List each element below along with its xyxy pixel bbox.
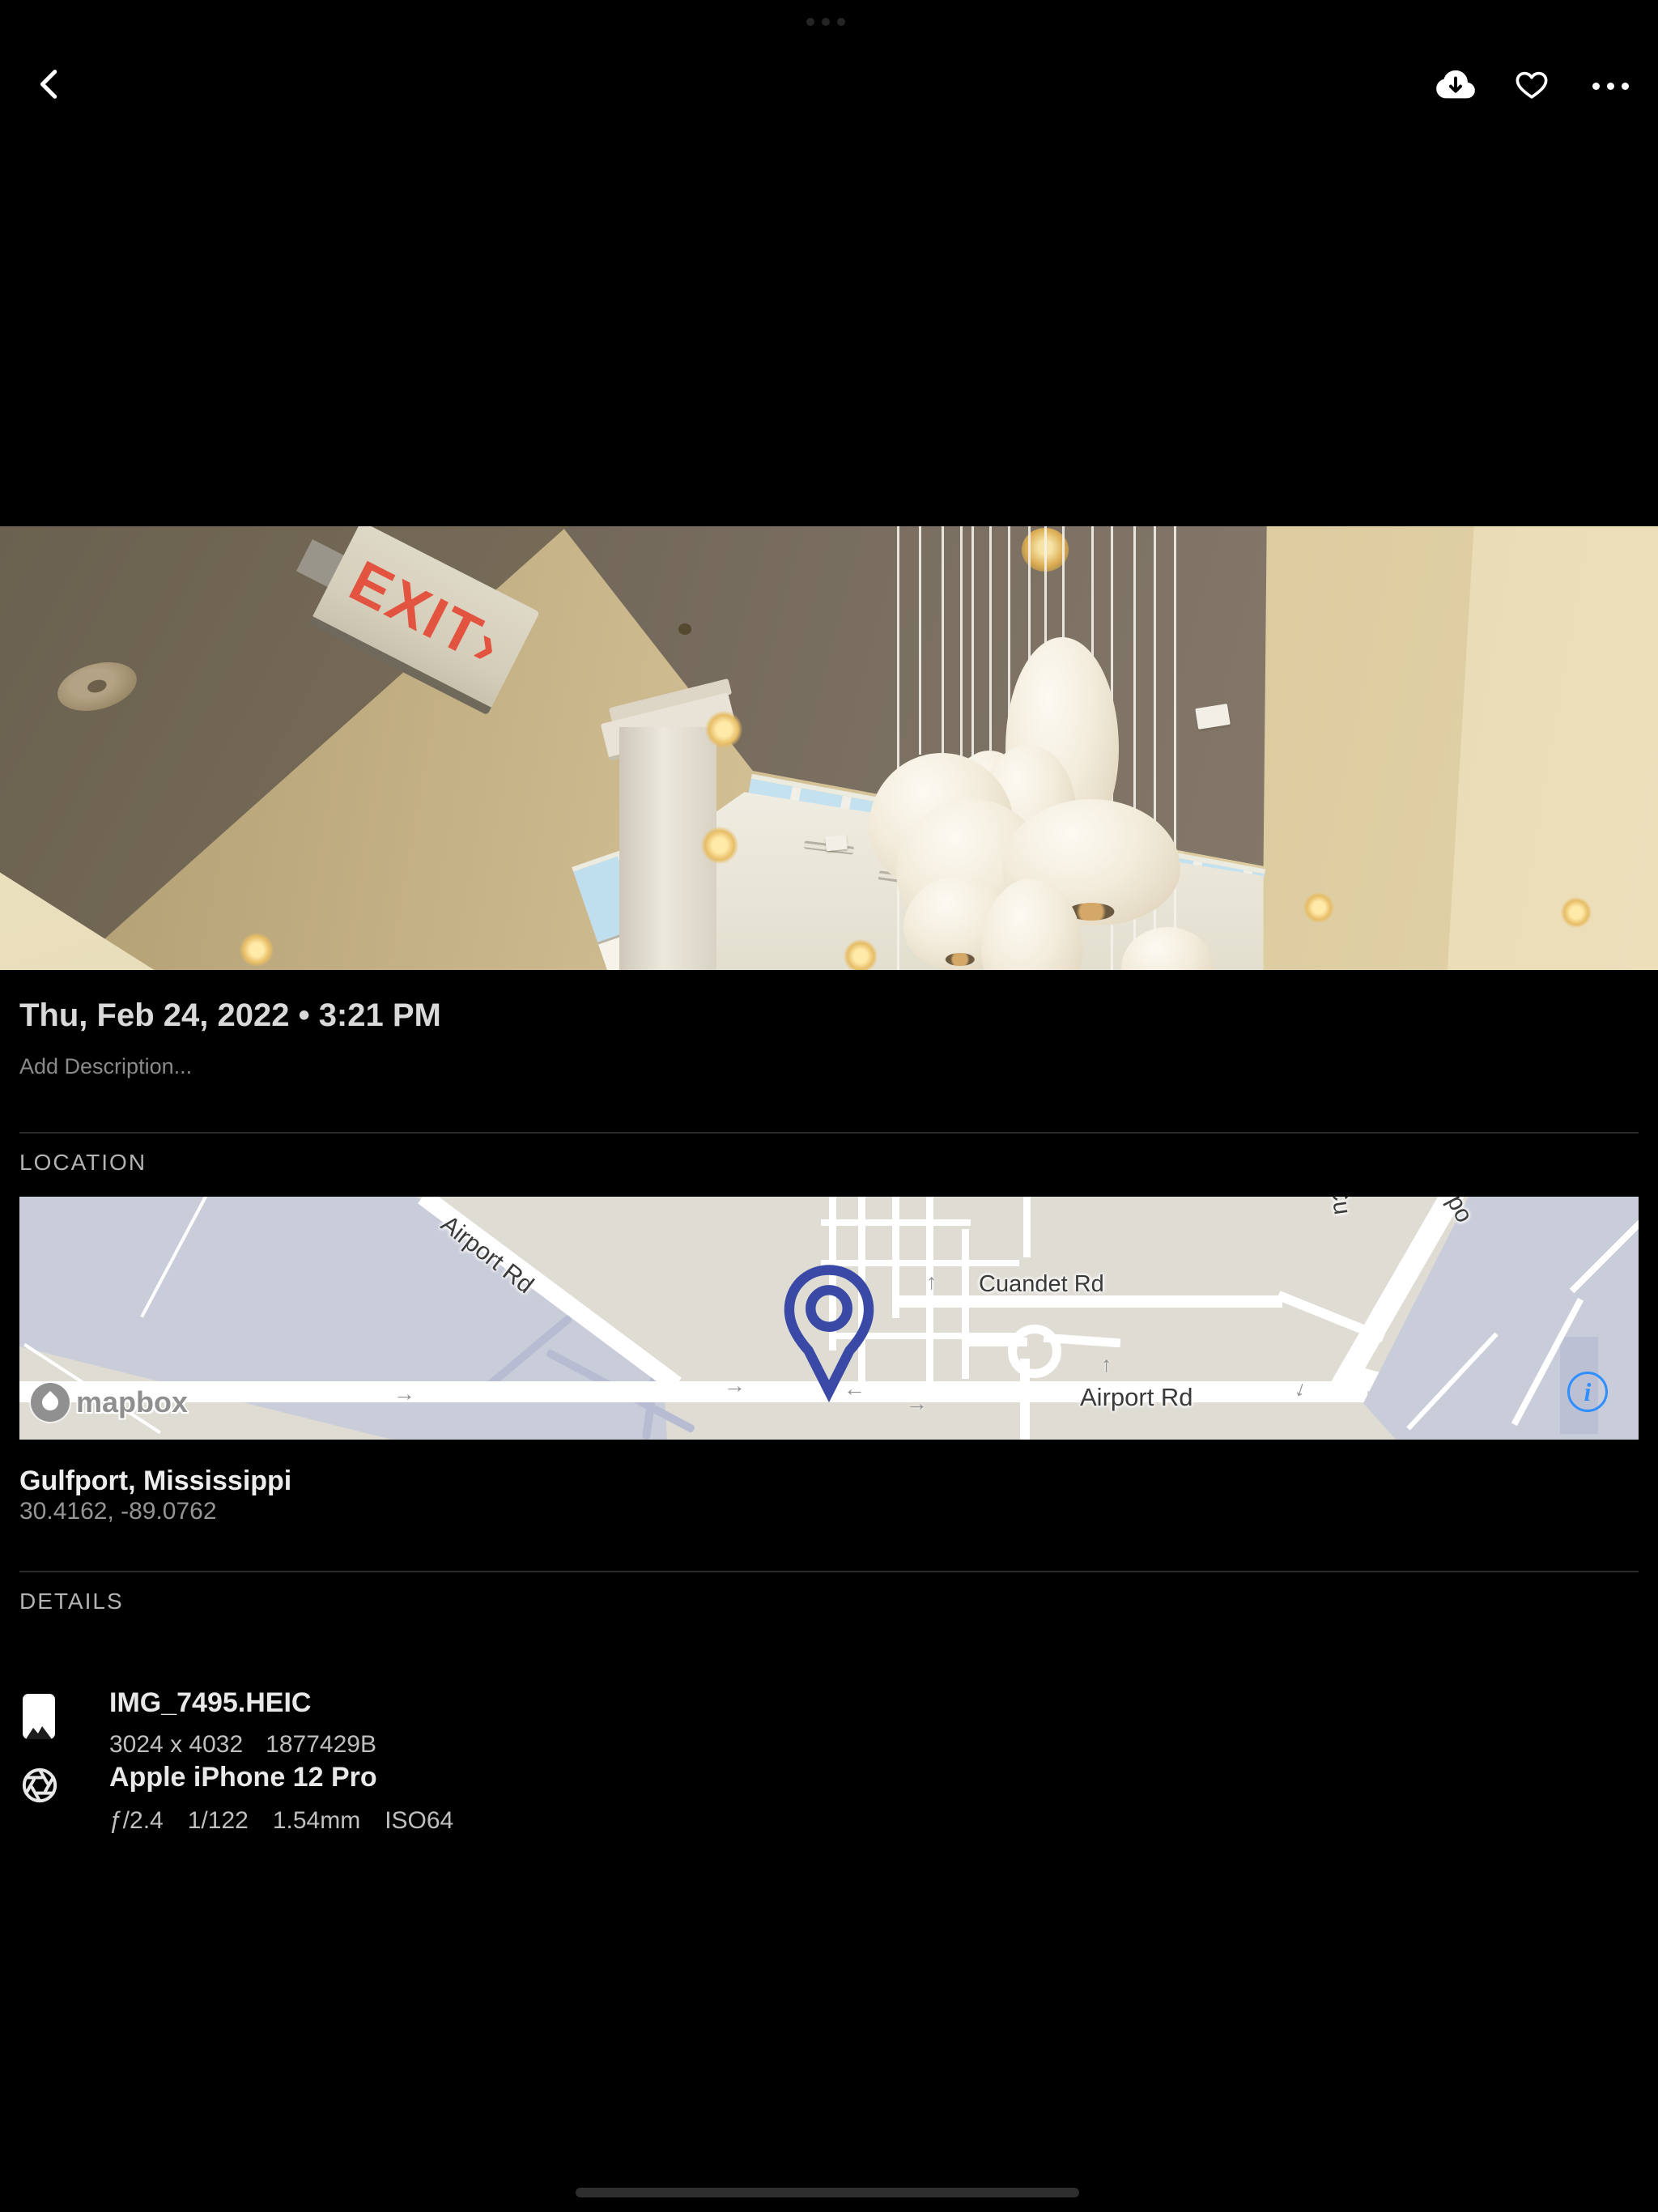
mapbox-attribution[interactable]: mapbox — [31, 1383, 188, 1422]
photo-ceiling-dot — [678, 623, 691, 635]
file-name: IMG_7495.HEIC — [109, 1687, 311, 1719]
location-header: LOCATION — [19, 1150, 147, 1176]
recessed-light — [844, 939, 878, 970]
camera-name: Apple iPhone 12 Pro — [109, 1762, 377, 1793]
aperture-icon — [19, 1765, 60, 1806]
camera-iso: ISO64 — [385, 1807, 453, 1835]
mapbox-wordmark: mapbox — [76, 1385, 188, 1419]
multitasking-grabber-icon — [806, 18, 845, 26]
description-input[interactable]: Add Description... — [19, 1054, 192, 1079]
map-street — [892, 1197, 899, 1318]
file-size: 1877429B — [266, 1731, 376, 1759]
download-button[interactable] — [1435, 65, 1477, 107]
camera-meta: ƒ/2.4 1/122 1.54mm ISO64 — [109, 1807, 453, 1835]
back-button[interactable] — [31, 66, 70, 105]
recessed-light — [1561, 897, 1592, 928]
divider — [19, 1132, 1639, 1134]
chevron-left-icon — [32, 66, 69, 107]
recessed-light — [240, 933, 274, 967]
more-options-button[interactable] — [1588, 74, 1632, 97]
lamp-cord — [1174, 526, 1176, 970]
ellipsis-icon — [1592, 83, 1629, 90]
file-meta: 3024 x 4032 1877429B — [109, 1731, 376, 1759]
location-map[interactable]: → → ← → ↓ ↑ ↑ Airport Rd Cuandet Rd Airp… — [19, 1197, 1639, 1440]
map-arrow-icon: → — [906, 1391, 928, 1416]
map-street — [962, 1229, 969, 1379]
map-label-cuandet-rd: Cuandet Rd — [979, 1271, 1104, 1298]
map-street — [1023, 1197, 1031, 1257]
map-arrow-icon: → — [393, 1381, 415, 1406]
map-info-button[interactable]: i — [1567, 1372, 1608, 1412]
recessed-light — [705, 711, 742, 748]
home-indicator — [576, 2188, 1079, 2197]
map-label-airport-rd: Airport Rd — [1080, 1383, 1193, 1412]
favorite-button[interactable] — [1513, 67, 1550, 104]
lamp-cord — [897, 526, 899, 970]
camera-shutter: 1/122 — [188, 1807, 249, 1835]
photo-preview[interactable]: EXIT› — [0, 526, 1658, 970]
location-place: Gulfport, Mississippi — [19, 1465, 291, 1497]
camera-focal-length: 1.54mm — [273, 1807, 360, 1835]
recessed-light — [701, 827, 738, 864]
asset-detail-screen: EXIT› Thu, Feb 24, — [0, 0, 1658, 2212]
cloud-download-icon — [1435, 63, 1477, 109]
mapbox-logo-icon — [31, 1383, 70, 1422]
lamp-cord — [1062, 526, 1065, 640]
asset-date: Thu, Feb 24, 2022 • 3:21 PM — [19, 998, 441, 1034]
map-label-street-clipped: Cu — [1324, 1197, 1356, 1216]
lamp-cord — [989, 526, 992, 753]
location-coordinates: 30.4162, -89.0762 — [19, 1498, 217, 1525]
image-file-icon — [23, 1694, 55, 1739]
map-arrow-icon: → — [724, 1373, 746, 1398]
divider — [19, 1571, 1639, 1572]
camera-aperture: ƒ/2.4 — [109, 1807, 164, 1835]
map-arrow-icon: ↑ — [926, 1270, 937, 1295]
details-header: DETAILS — [19, 1589, 124, 1614]
photo-spotlight — [825, 835, 848, 852]
map-arrow-icon: ↑ — [1101, 1352, 1112, 1377]
map-roundabout — [1008, 1325, 1061, 1378]
lamp-cord — [919, 526, 921, 755]
lamp-cord — [942, 526, 944, 756]
recessed-light — [1303, 892, 1334, 923]
info-icon: i — [1584, 1377, 1592, 1407]
file-dimensions: 3024 x 4032 — [109, 1731, 243, 1759]
heart-icon — [1513, 66, 1550, 107]
map-street — [821, 1219, 971, 1226]
